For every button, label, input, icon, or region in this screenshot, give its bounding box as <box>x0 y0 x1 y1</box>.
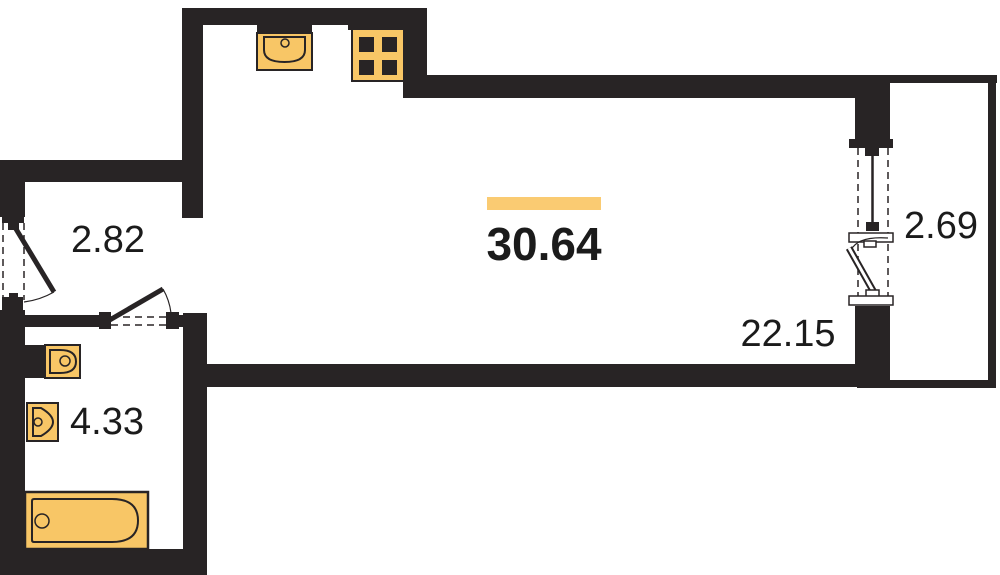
walls <box>0 8 890 575</box>
bathroom-door-post-right <box>166 312 179 329</box>
room-area-label-balcony: 2.69 <box>904 205 978 247</box>
entry-door-tab-outer <box>0 205 10 213</box>
stove-burner-3 <box>359 60 374 75</box>
floor-plan-svg: 30.64 2.82 22.15 4.33 2.69 <box>0 0 1000 575</box>
stove-burner-1 <box>359 37 374 52</box>
balcony-window-door <box>849 139 893 305</box>
wall-bathroom-divider-left <box>25 315 102 327</box>
total-area-accent-bar <box>487 197 601 210</box>
entry-door <box>0 205 54 310</box>
room-area-label-bathroom: 4.33 <box>70 401 144 443</box>
window-frame-tab-bottom <box>866 222 879 231</box>
wall-bathroom-right <box>183 313 207 575</box>
stove-burner-2 <box>382 37 397 52</box>
window-mid-sill-notch <box>864 241 876 247</box>
stove-burner-4 <box>382 60 397 75</box>
wall-window-pier-lower <box>855 306 890 384</box>
wall-top-right <box>403 75 890 98</box>
wall-top-kitchen <box>182 8 427 25</box>
toilet-tank <box>25 345 47 378</box>
floor-plan-page: 30.64 2.82 22.15 4.33 2.69 <box>0 0 1000 575</box>
bathroom-door-swing-arc <box>163 289 171 313</box>
total-area-label: 30.64 <box>486 218 602 270</box>
wall-bottom <box>0 549 207 575</box>
wall-hallway-top <box>0 160 203 182</box>
room-area-label-hallway: 2.82 <box>71 219 145 261</box>
wall-main-bottom <box>190 364 857 387</box>
wall-main-left <box>182 8 203 218</box>
balcony-door-leaf-inner <box>849 248 876 296</box>
room-area-label-main-room: 22.15 <box>740 313 835 355</box>
stove <box>348 25 407 81</box>
balcony-wall-bottom <box>857 380 996 388</box>
entry-door-swing-arc <box>24 292 54 302</box>
bathroom-door <box>99 289 179 329</box>
bathtub <box>25 492 148 549</box>
kitchen-sink <box>257 25 312 70</box>
window-bottom-sill <box>849 296 893 305</box>
entry-door-leaf <box>13 224 54 292</box>
balcony-wall-top <box>890 75 997 83</box>
window-head-sill <box>849 139 893 148</box>
bathroom-door-leaf <box>108 289 163 321</box>
bathtub-body <box>25 492 148 549</box>
entry-door-post-bottom <box>2 297 23 310</box>
entry-door-post-top <box>2 214 24 223</box>
balcony-wall-right <box>988 75 996 388</box>
washbasin <box>27 403 58 441</box>
toilet <box>25 345 80 378</box>
wall-left-lower <box>0 310 25 575</box>
wall-window-pier-upper <box>855 98 890 142</box>
